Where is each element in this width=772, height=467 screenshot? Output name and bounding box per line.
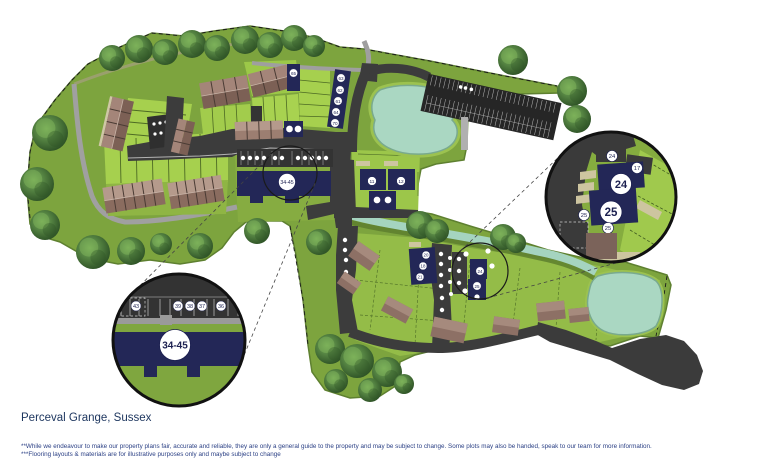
svg-text:20: 20 [424,253,429,258]
svg-text:21: 21 [418,275,423,280]
svg-text:34-45: 34-45 [280,180,293,186]
svg-text:36: 36 [218,304,224,310]
svg-text:62: 62 [337,88,343,93]
svg-text:Perceval Grange, Sussex: Perceval Grange, Sussex [21,412,152,424]
svg-text:11: 11 [370,179,375,185]
svg-text:**While we endeavour to make o: **While we endeavour to make our propert… [21,443,652,450]
svg-text:24: 24 [609,154,616,160]
svg-text:***Flooring layouts & material: ***Flooring layouts & materials are for … [21,451,281,458]
svg-text:25: 25 [581,213,587,219]
svg-text:38: 38 [187,304,193,310]
svg-text:37: 37 [199,304,205,310]
svg-text:43: 43 [133,304,139,310]
svg-text:64: 64 [333,110,339,115]
svg-text:65: 65 [291,71,297,76]
svg-text:18: 18 [421,264,426,269]
svg-text:25: 25 [605,226,611,232]
svg-text:25: 25 [474,284,480,289]
svg-text:61: 61 [335,99,341,104]
svg-text:24: 24 [477,269,483,274]
svg-text:17: 17 [634,166,640,172]
svg-text:24: 24 [615,179,628,191]
svg-text:25: 25 [605,207,618,219]
svg-text:12: 12 [398,179,404,185]
svg-text:70: 70 [332,121,338,126]
svg-text:63: 63 [338,76,344,81]
svg-text:39: 39 [175,304,181,310]
svg-text:34-45: 34-45 [162,341,188,352]
